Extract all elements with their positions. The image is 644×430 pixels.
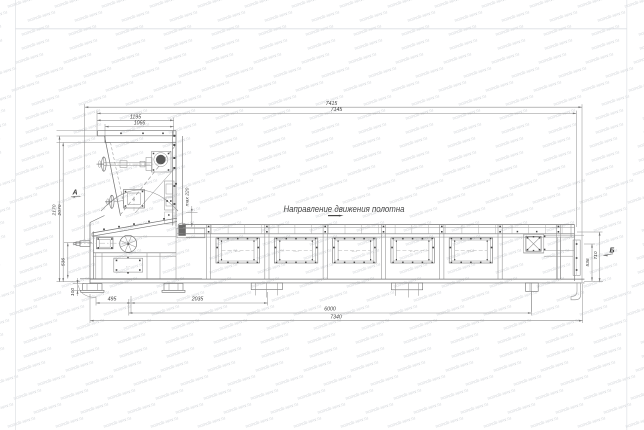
svg-text:nomob-wxv.ru: nomob-wxv.ru	[309, 345, 339, 359]
svg-text:nomob-wxv.ru: nomob-wxv.ru	[497, 331, 527, 345]
svg-text:nomob-wxv.ru: nomob-wxv.ru	[507, 401, 537, 415]
svg-text:nomob-wxv.ru: nomob-wxv.ru	[258, 23, 288, 37]
svg-text:nomob-wxv.ru: nomob-wxv.ru	[350, 359, 380, 373]
svg-text:nomob-wxv.ru: nomob-wxv.ru	[0, 65, 17, 79]
svg-text:nomob-wxv.ru: nomob-wxv.ru	[257, 135, 287, 149]
svg-text:nomob-wxv.ru: nomob-wxv.ru	[463, 65, 493, 79]
svg-text:nomob-wxv.ru: nomob-wxv.ru	[593, 331, 623, 345]
svg-text:nomob-wxv.ru: nomob-wxv.ru	[436, 303, 466, 317]
svg-text:nomob-wxv.ru: nomob-wxv.ru	[411, 93, 441, 107]
svg-text:nomob-wxv.ru: nomob-wxv.ru	[268, 93, 298, 107]
svg-text:-··-: -··-	[352, 248, 358, 253]
svg-text:nomob-wxv.ru: nomob-wxv.ru	[162, 261, 192, 275]
svg-text:nomob-wxv.ru: nomob-wxv.ru	[495, 261, 525, 275]
svg-text:nomob-wxv.ru: nomob-wxv.ru	[129, 177, 159, 191]
svg-text:nomob-wxv.ru: nomob-wxv.ru	[56, 303, 86, 317]
svg-text:nomob-wxv.ru: nomob-wxv.ru	[215, 121, 245, 135]
svg-text:nomob-wxv.ru: nomob-wxv.ru	[630, 387, 644, 401]
svg-text:nomob-wxv.ru: nomob-wxv.ru	[341, 303, 371, 317]
svg-text:nomob-wxv.ru: nomob-wxv.ru	[169, 9, 199, 23]
svg-text:nomob-wxv.ru: nomob-wxv.ru	[485, 191, 515, 205]
svg-text:nomob-wxv.ru: nomob-wxv.ru	[405, 107, 435, 121]
svg-text:nomob-wxv.ru: nomob-wxv.ru	[71, 345, 101, 359]
svg-text:nomob-wxv.ru: nomob-wxv.ru	[203, 275, 233, 289]
svg-text:nomob-wxv.ru: nomob-wxv.ru	[536, 275, 566, 289]
svg-text:nomob-wxv.ru: nomob-wxv.ru	[68, 23, 98, 37]
svg-text:536: 536	[61, 258, 67, 266]
svg-text:nomob-wxv.ru: nomob-wxv.ru	[33, 401, 63, 415]
svg-text:nomob-wxv.ru: nomob-wxv.ru	[103, 303, 133, 317]
svg-text:nomob-wxv.ru: nomob-wxv.ru	[354, 37, 384, 51]
svg-text:nomob-wxv.ru: nomob-wxv.ru	[0, 289, 15, 303]
svg-text:nomob-wxv.ru: nomob-wxv.ru	[543, 149, 573, 163]
svg-text:nomob-wxv.ru: nomob-wxv.ru	[529, 0, 559, 9]
svg-text:nomob-wxv.ru: nomob-wxv.ru	[357, 107, 387, 121]
svg-text:nomob-wxv.ru: nomob-wxv.ru	[223, 401, 253, 415]
svg-text:nomob-wxv.ru: nomob-wxv.ru	[23, 331, 53, 345]
svg-text:nomob-wxv.ru: nomob-wxv.ru	[533, 79, 563, 93]
svg-text:nomob-wxv.ru: nomob-wxv.ru	[111, 51, 141, 65]
svg-text:nomob-wxv.ru: nomob-wxv.ru	[497, 37, 527, 51]
svg-text:nomob-wxv.ru: nomob-wxv.ru	[37, 373, 67, 387]
svg-text:nomob-wxv.ru: nomob-wxv.ru	[0, 135, 1, 149]
svg-text:nomob-wxv.ru: nomob-wxv.ru	[83, 65, 113, 79]
svg-text:nomob-wxv.ru: nomob-wxv.ru	[434, 0, 464, 9]
svg-text:nomob-wxv.ru: nomob-wxv.ru	[219, 317, 249, 331]
svg-text:nomob-wxv.ru: nomob-wxv.ru	[640, 331, 644, 345]
svg-text:nomob-wxv.ru: nomob-wxv.ru	[632, 163, 644, 177]
svg-text:А: А	[71, 190, 77, 197]
svg-text:nomob-wxv.ru: nomob-wxv.ru	[131, 65, 161, 79]
svg-text:nomob-wxv.ru: nomob-wxv.ru	[585, 163, 615, 177]
svg-text:nomob-wxv.ru: nomob-wxv.ru	[119, 233, 149, 247]
svg-text:nomob-wxv.ru: nomob-wxv.ru	[305, 23, 335, 37]
svg-text:nomob-wxv.ru: nomob-wxv.ru	[113, 359, 143, 373]
svg-text:nomob-wxv.ru: nomob-wxv.ru	[547, 107, 577, 121]
svg-text:nomob-wxv.ru: nomob-wxv.ru	[397, 359, 427, 373]
svg-text:nomob-wxv.ru: nomob-wxv.ru	[493, 359, 523, 373]
svg-text:nomob-wxv.ru: nomob-wxv.ru	[499, 345, 529, 359]
svg-text:nomob-wxv.ru: nomob-wxv.ru	[603, 401, 633, 415]
svg-text:7145: 7145	[331, 107, 343, 113]
svg-text:nomob-wxv.ru: nomob-wxv.ru	[353, 23, 383, 37]
svg-text:nomob-wxv.ru: nomob-wxv.ru	[33, 289, 63, 303]
svg-text:nomob-wxv.ru: nomob-wxv.ru	[85, 373, 115, 387]
svg-text:nomob-wxv.ru: nomob-wxv.ru	[368, 65, 398, 79]
svg-text:nomob-wxv.ru: nomob-wxv.ru	[532, 191, 562, 205]
svg-text:nomob-wxv.ru: nomob-wxv.ru	[495, 135, 525, 149]
svg-text:nomob-wxv.ru: nomob-wxv.ru	[129, 289, 159, 303]
svg-text:nomob-wxv.ru: nomob-wxv.ru	[605, 65, 635, 79]
svg-text:2170: 2170	[51, 204, 57, 216]
svg-text:nomob-wxv.ru: nomob-wxv.ru	[152, 191, 182, 205]
svg-text:nomob-wxv.ru: nomob-wxv.ru	[448, 23, 478, 37]
svg-text:nomob-wxv.ru: nomob-wxv.ru	[0, 23, 2, 37]
svg-text:nomob-wxv.ru: nomob-wxv.ru	[21, 149, 51, 163]
svg-text:nomob-wxv.ru: nomob-wxv.ru	[180, 373, 210, 387]
svg-text:nomob-wxv.ru: nomob-wxv.ru	[209, 135, 239, 149]
svg-text:nomob-wxv.ru: nomob-wxv.ru	[246, 303, 276, 317]
svg-text:nomob-wxv.ru: nomob-wxv.ru	[359, 9, 389, 23]
svg-text:nomob-wxv.ru: nomob-wxv.ru	[581, 79, 611, 93]
svg-text:nomob-wxv.ru: nomob-wxv.ru	[358, 121, 388, 135]
svg-text:nomob-wxv.ru: nomob-wxv.ru	[293, 415, 323, 429]
svg-text:nomob-wxv.ru: nomob-wxv.ru	[68, 149, 98, 163]
svg-text:max 220: max 220	[185, 187, 191, 206]
svg-text:nomob-wxv.ru: nomob-wxv.ru	[66, 247, 96, 261]
svg-text:nomob-wxv.ru: nomob-wxv.ru	[297, 387, 327, 401]
svg-text:nomob-wxv.ru: nomob-wxv.ru	[23, 219, 53, 233]
svg-text:nomob-wxv.ru: nomob-wxv.ru	[417, 373, 447, 387]
svg-text:nomob-wxv.ru: nomob-wxv.ru	[178, 65, 208, 79]
svg-text:nomob-wxv.ru: nomob-wxv.ru	[262, 107, 292, 121]
svg-text:nomob-wxv.ru: nomob-wxv.ru	[583, 387, 613, 401]
svg-text:nomob-wxv.ru: nomob-wxv.ru	[275, 373, 305, 387]
svg-text:nomob-wxv.ru: nomob-wxv.ru	[17, 359, 47, 373]
svg-text:nomob-wxv.ru: nomob-wxv.ru	[150, 415, 180, 429]
svg-text:nomob-wxv.ru: nomob-wxv.ru	[544, 37, 574, 51]
svg-text:nomob-wxv.ru: nomob-wxv.ru	[441, 275, 471, 289]
svg-text:nomob-wxv.ru: nomob-wxv.ru	[161, 247, 191, 261]
svg-text:nomob-wxv.ru: nomob-wxv.ru	[121, 9, 151, 23]
svg-text:1066: 1066	[134, 121, 146, 127]
svg-text:nomob-wxv.ru: nomob-wxv.ru	[445, 359, 475, 373]
svg-text:nomob-wxv.ru: nomob-wxv.ru	[13, 387, 43, 401]
svg-text:nomob-wxv.ru: nomob-wxv.ru	[0, 401, 14, 415]
svg-text:nomob-wxv.ru: nomob-wxv.ru	[125, 93, 155, 107]
svg-text:495: 495	[108, 297, 117, 303]
svg-text:nomob-wxv.ru: nomob-wxv.ru	[387, 415, 417, 429]
svg-text:nomob-wxv.ru: nomob-wxv.ru	[352, 135, 382, 149]
svg-text:nomob-wxv.ru: nomob-wxv.ru	[543, 23, 573, 37]
svg-text:nomob-wxv.ru: nomob-wxv.ru	[54, 0, 84, 9]
svg-text:nomob-wxv.ru: nomob-wxv.ru	[261, 345, 291, 359]
svg-text:nomob-wxv.ru: nomob-wxv.ru	[636, 247, 644, 261]
svg-text:nomob-wxv.ru: nomob-wxv.ru	[207, 359, 237, 373]
svg-text:nomob-wxv.ru: nomob-wxv.ru	[55, 415, 85, 429]
svg-text:nomob-wxv.ru: nomob-wxv.ru	[217, 9, 247, 23]
svg-text:nomob-wxv.ru: nomob-wxv.ru	[13, 275, 43, 289]
svg-text:nomob-wxv.ru: nomob-wxv.ru	[453, 121, 483, 135]
svg-text:nomob-wxv.ru: nomob-wxv.ru	[363, 93, 393, 107]
svg-text:nomob-wxv.ru: nomob-wxv.ru	[395, 51, 425, 65]
svg-text:nomob-wxv.ru: nomob-wxv.ru	[540, 359, 570, 373]
svg-text:nomob-wxv.ru: nomob-wxv.ru	[551, 317, 581, 331]
svg-text:nomob-wxv.ru: nomob-wxv.ru	[499, 107, 529, 121]
svg-text:100: 100	[70, 288, 76, 296]
svg-text:nomob-wxv.ru: nomob-wxv.ru	[401, 23, 431, 37]
svg-text:nomob-wxv.ru: nomob-wxv.ru	[452, 107, 482, 121]
svg-text:nomob-wxv.ru: nomob-wxv.ru	[451, 345, 481, 359]
svg-text:-··-: -··-	[235, 248, 241, 253]
svg-text:nomob-wxv.ru: nomob-wxv.ru	[173, 93, 203, 107]
svg-text:nomob-wxv.ru: nomob-wxv.ru	[0, 121, 7, 135]
svg-text:nomob-wxv.ru: nomob-wxv.ru	[23, 345, 53, 359]
svg-text:nomob-wxv.ru: nomob-wxv.ru	[177, 177, 207, 191]
svg-text:nomob-wxv.ru: nomob-wxv.ru	[25, 233, 55, 247]
svg-text:nomob-wxv.ru: nomob-wxv.ru	[163, 149, 193, 163]
svg-text:nomob-wxv.ru: nomob-wxv.ru	[403, 345, 433, 359]
svg-text:nomob-wxv.ru: nomob-wxv.ru	[505, 205, 535, 219]
svg-text:nomob-wxv.ru: nomob-wxv.ru	[225, 177, 255, 191]
svg-text:nomob-wxv.ru: nomob-wxv.ru	[413, 401, 443, 415]
svg-text:nomob-wxv.ru: nomob-wxv.ru	[605, 177, 635, 191]
svg-text:nomob-wxv.ru: nomob-wxv.ru	[9, 303, 39, 317]
svg-text:nomob-wxv.ru: nomob-wxv.ru	[223, 289, 253, 303]
svg-text:nomob-wxv.ru: nomob-wxv.ru	[553, 93, 583, 107]
svg-text:nomob-wxv.ru: nomob-wxv.ru	[80, 401, 110, 415]
svg-text:nomob-wxv.ru: nomob-wxv.ru	[489, 275, 519, 289]
svg-text:nomob-wxv.ru: nomob-wxv.ru	[339, 0, 369, 9]
svg-text:nomob-wxv.ru: nomob-wxv.ru	[465, 373, 495, 387]
svg-text:nomob-wxv.ru: nomob-wxv.ru	[591, 149, 621, 163]
svg-text:nomob-wxv.ru: nomob-wxv.ru	[0, 233, 6, 247]
svg-text:nomob-wxv.ru: nomob-wxv.ru	[403, 219, 433, 233]
svg-text:nomob-wxv.ru: nomob-wxv.ru	[558, 65, 588, 79]
svg-text:nomob-wxv.ru: nomob-wxv.ru	[245, 415, 275, 429]
svg-text:nomob-wxv.ru: nomob-wxv.ru	[449, 37, 479, 51]
svg-text:nomob-wxv.ru: nomob-wxv.ru	[415, 65, 445, 79]
svg-text:nomob-wxv.ru: nomob-wxv.ru	[591, 37, 621, 51]
svg-text:nomob-wxv.ru: nomob-wxv.ru	[538, 51, 568, 65]
svg-text:nomob-wxv.ru: nomob-wxv.ru	[133, 373, 163, 387]
svg-text:nomob-wxv.ru: nomob-wxv.ru	[60, 387, 90, 401]
svg-text:nomob-wxv.ru: nomob-wxv.ru	[21, 23, 51, 37]
svg-text:nomob-wxv.ru: nomob-wxv.ru	[203, 387, 233, 401]
svg-text:nomob-wxv.ru: nomob-wxv.ru	[25, 107, 55, 121]
svg-text:nomob-wxv.ru: nomob-wxv.ru	[63, 51, 93, 65]
svg-text:nomob-wxv.ru: nomob-wxv.ru	[348, 51, 378, 65]
svg-text:nomob-wxv.ru: nomob-wxv.ru	[454, 9, 484, 23]
svg-text:nomob-wxv.ru: nomob-wxv.ru	[448, 149, 478, 163]
svg-text:nomob-wxv.ru: nomob-wxv.ru	[158, 51, 188, 65]
svg-text:nomob-wxv.ru: nomob-wxv.ru	[461, 289, 491, 303]
svg-text:nomob-wxv.ru: nomob-wxv.ru	[201, 79, 231, 93]
svg-text:nomob-wxv.ru: nomob-wxv.ru	[505, 93, 535, 107]
svg-text:nomob-wxv.ru: nomob-wxv.ru	[481, 0, 511, 9]
svg-text:nomob-wxv.ru: nomob-wxv.ru	[405, 121, 435, 135]
svg-text:nomob-wxv.ru: nomob-wxv.ru	[631, 275, 644, 289]
svg-text:nomob-wxv.ru: nomob-wxv.ru	[413, 289, 443, 303]
svg-text:nomob-wxv.ru: nomob-wxv.ru	[595, 107, 625, 121]
svg-text:nomob-wxv.ru: nomob-wxv.ru	[293, 303, 323, 317]
svg-text:nomob-wxv.ru: nomob-wxv.ru	[0, 345, 5, 359]
svg-text:nomob-wxv.ru: nomob-wxv.ru	[272, 177, 302, 191]
svg-text:nomob-wxv.ru: nomob-wxv.ru	[370, 373, 400, 387]
svg-text:nomob-wxv.ru: nomob-wxv.ru	[305, 135, 335, 149]
svg-text:nomob-wxv.ru: nomob-wxv.ru	[78, 93, 108, 107]
svg-text:nomob-wxv.ru: nomob-wxv.ru	[35, 65, 65, 79]
svg-text:nomob-wxv.ru: nomob-wxv.ru	[447, 135, 477, 149]
svg-text:nomob-wxv.ru: nomob-wxv.ru	[501, 121, 531, 135]
svg-text:nomob-wxv.ru: nomob-wxv.ru	[0, 37, 3, 51]
svg-text:nomob-wxv.ru: nomob-wxv.ru	[555, 401, 585, 415]
svg-text:nomob-wxv.ru: nomob-wxv.ru	[311, 9, 341, 23]
svg-text:7340: 7340	[330, 314, 342, 320]
svg-text:nomob-wxv.ru: nomob-wxv.ru	[457, 205, 487, 219]
svg-text:nomob-wxv.ru: nomob-wxv.ru	[387, 0, 417, 9]
svg-text:nomob-wxv.ru: nomob-wxv.ru	[199, 191, 229, 205]
svg-text:nomob-wxv.ru: nomob-wxv.ru	[633, 51, 644, 65]
svg-text:nomob-wxv.ru: nomob-wxv.ru	[213, 219, 243, 233]
svg-text:nomob-wxv.ru: nomob-wxv.ru	[256, 247, 286, 261]
svg-text:nomob-wxv.ru: nomob-wxv.ru	[21, 37, 51, 51]
svg-text:nomob-wxv.ru: nomob-wxv.ru	[0, 317, 10, 331]
svg-text:nomob-wxv.ru: nomob-wxv.ru	[119, 345, 149, 359]
svg-text:nomob-wxv.ru: nomob-wxv.ru	[197, 415, 227, 429]
svg-text:nomob-wxv.ru: nomob-wxv.ru	[319, 289, 349, 303]
svg-text:nomob-wxv.ru: nomob-wxv.ru	[595, 121, 625, 135]
svg-text:nomob-wxv.ru: nomob-wxv.ru	[637, 261, 644, 275]
svg-text:nomob-wxv.ru: nomob-wxv.ru	[548, 121, 578, 135]
svg-text:nomob-wxv.ru: nomob-wxv.ru	[259, 37, 289, 51]
svg-text:nomob-wxv.ru: nomob-wxv.ru	[270, 401, 300, 415]
svg-text:nomob-wxv.ru: nomob-wxv.ru	[127, 401, 157, 415]
svg-text:nomob-wxv.ru: nomob-wxv.ru	[227, 373, 257, 387]
svg-text:nomob-wxv.ru: nomob-wxv.ru	[248, 79, 278, 93]
svg-text:nomob-wxv.ru: nomob-wxv.ru	[593, 345, 623, 359]
svg-text:nomob-wxv.ru: nomob-wxv.ru	[638, 149, 644, 163]
svg-text:nomob-wxv.ru: nomob-wxv.ru	[58, 79, 88, 93]
svg-text:Направление движения полотна: Направление движения полотна	[284, 204, 405, 214]
svg-text:nomob-wxv.ru: nomob-wxv.ru	[115, 135, 145, 149]
svg-text:nomob-wxv.ru: nomob-wxv.ru	[625, 415, 644, 429]
svg-text:nomob-wxv.ru: nomob-wxv.ru	[15, 51, 45, 65]
svg-text:2035: 2035	[191, 297, 204, 303]
svg-text:nomob-wxv.ru: nomob-wxv.ru	[266, 317, 296, 331]
svg-text:nomob-wxv.ru: nomob-wxv.ru	[491, 51, 521, 65]
svg-text:nomob-wxv.ru: nomob-wxv.ru	[409, 205, 439, 219]
svg-text:nomob-wxv.ru: nomob-wxv.ru	[460, 401, 490, 415]
svg-text:nomob-wxv.ru: nomob-wxv.ru	[252, 163, 282, 177]
svg-text:nomob-wxv.ru: nomob-wxv.ru	[113, 247, 143, 261]
svg-text:nomob-wxv.ru: nomob-wxv.ru	[0, 9, 8, 23]
svg-text:nomob-wxv.ru: nomob-wxv.ru	[197, 0, 227, 9]
svg-text:nomob-wxv.ru: nomob-wxv.ru	[19, 247, 49, 261]
svg-text:nomob-wxv.ru: nomob-wxv.ru	[628, 79, 644, 93]
svg-text:nomob-wxv.ru: nomob-wxv.ru	[153, 79, 183, 93]
svg-text:nomob-wxv.ru: nomob-wxv.ru	[61, 275, 91, 289]
svg-text:nomob-wxv.ru: nomob-wxv.ru	[537, 163, 567, 177]
svg-text:nomob-wxv.ru: nomob-wxv.ru	[115, 149, 145, 163]
svg-text:nomob-wxv.ru: nomob-wxv.ru	[74, 9, 104, 23]
svg-text:nomob-wxv.ru: nomob-wxv.ru	[483, 303, 513, 317]
svg-text:nomob-wxv.ru: nomob-wxv.ru	[501, 9, 531, 23]
svg-text:nomob-wxv.ru: nomob-wxv.ru	[82, 177, 112, 191]
svg-text:nomob-wxv.ru: nomob-wxv.ru	[167, 107, 197, 121]
svg-text:nomob-wxv.ru: nomob-wxv.ru	[0, 261, 1, 275]
svg-text:nomob-wxv.ru: nomob-wxv.ru	[299, 163, 329, 177]
svg-text:nomob-wxv.ru: nomob-wxv.ru	[307, 37, 337, 51]
svg-text:nomob-wxv.ru: nomob-wxv.ru	[627, 191, 644, 205]
svg-text:nomob-wxv.ru: nomob-wxv.ru	[560, 373, 590, 387]
svg-text:nomob-wxv.ru: nomob-wxv.ru	[599, 205, 629, 219]
svg-text:nomob-wxv.ru: nomob-wxv.ru	[456, 317, 486, 331]
svg-text:nomob-wxv.ru: nomob-wxv.ru	[489, 163, 519, 177]
svg-text:nomob-wxv.ru: nomob-wxv.ru	[209, 247, 239, 261]
svg-text:nomob-wxv.ru: nomob-wxv.ru	[389, 303, 419, 317]
svg-text:nomob-wxv.ru: nomob-wxv.ru	[440, 387, 470, 401]
svg-text:nomob-wxv.ru: nomob-wxv.ru	[76, 317, 106, 331]
svg-text:nomob-wxv.ru: nomob-wxv.ru	[301, 51, 331, 65]
svg-text:nomob-wxv.ru: nomob-wxv.ru	[311, 121, 341, 135]
svg-text:nomob-wxv.ru: nomob-wxv.ru	[391, 79, 421, 93]
svg-text:nomob-wxv.ru: nomob-wxv.ru	[407, 9, 437, 23]
svg-text:nomob-wxv.ru: nomob-wxv.ru	[160, 359, 190, 373]
svg-text:nomob-wxv.ru: nomob-wxv.ru	[291, 0, 321, 9]
svg-text:nomob-wxv.ru: nomob-wxv.ru	[509, 177, 539, 191]
svg-text:nomob-wxv.ru: nomob-wxv.ru	[319, 177, 349, 191]
svg-text:nomob-wxv.ru: nomob-wxv.ru	[303, 359, 333, 373]
svg-text:nomob-wxv.ru: nomob-wxv.ru	[353, 149, 383, 163]
svg-text:nomob-wxv.ru: nomob-wxv.ru	[165, 331, 195, 345]
svg-text:nomob-wxv.ru: nomob-wxv.ru	[166, 345, 196, 359]
svg-text:nomob-wxv.ru: nomob-wxv.ru	[635, 359, 644, 373]
svg-text:nomob-wxv.ru: nomob-wxv.ru	[593, 219, 623, 233]
svg-text:nomob-wxv.ru: nomob-wxv.ru	[485, 79, 515, 93]
svg-text:nomob-wxv.ru: nomob-wxv.ru	[579, 303, 609, 317]
svg-text:nomob-wxv.ru: nomob-wxv.ru	[356, 345, 386, 359]
svg-text:nomob-wxv.ru: nomob-wxv.ru	[361, 317, 391, 331]
svg-text:nomob-wxv.ru: nomob-wxv.ru	[546, 345, 576, 359]
svg-text:nomob-wxv.ru: nomob-wxv.ru	[499, 233, 529, 247]
svg-text:nomob-wxv.ru: nomob-wxv.ru	[19, 135, 49, 149]
svg-text:nomob-wxv.ru: nomob-wxv.ru	[0, 219, 5, 233]
svg-text:nomob-wxv.ru: nomob-wxv.ru	[513, 373, 543, 387]
svg-text:nomob-wxv.ru: nomob-wxv.ru	[535, 387, 565, 401]
svg-text:nomob-wxv.ru: nomob-wxv.ru	[260, 331, 290, 345]
svg-text:nomob-wxv.ru: nomob-wxv.ru	[603, 289, 633, 303]
svg-text:nomob-wxv.ru: nomob-wxv.ru	[213, 331, 243, 345]
svg-text:nomob-wxv.ru: nomob-wxv.ru	[495, 23, 525, 37]
svg-text:nomob-wxv.ru: nomob-wxv.ru	[321, 65, 351, 79]
svg-text:nomob-wxv.ru: nomob-wxv.ru	[356, 219, 386, 233]
svg-text:nomob-wxv.ru: nomob-wxv.ru	[323, 373, 353, 387]
svg-text:nomob-wxv.ru: nomob-wxv.ru	[0, 149, 2, 163]
svg-text:nomob-wxv.ru: nomob-wxv.ru	[247, 191, 277, 205]
svg-text:nomob-wxv.ru: nomob-wxv.ru	[367, 177, 397, 191]
svg-text:nomob-wxv.ru: nomob-wxv.ru	[637, 135, 644, 149]
svg-text:nomob-wxv.ru: nomob-wxv.ru	[211, 149, 241, 163]
svg-text:nomob-wxv.ru: nomob-wxv.ru	[0, 331, 4, 345]
svg-text:nomob-wxv.ru: nomob-wxv.ru	[62, 163, 92, 177]
svg-text:nomob-wxv.ru: nomob-wxv.ru	[305, 149, 335, 163]
svg-text:nomob-wxv.ru: nomob-wxv.ru	[587, 359, 617, 373]
svg-text:nomob-wxv.ru: nomob-wxv.ru	[175, 401, 205, 415]
svg-text:nomob-wxv.ru: nomob-wxv.ru	[626, 303, 644, 317]
svg-text:nomob-wxv.ru: nomob-wxv.ru	[35, 177, 65, 191]
svg-text:nomob-wxv.ru: nomob-wxv.ru	[577, 415, 607, 429]
svg-text:nomob-wxv.ru: nomob-wxv.ru	[346, 275, 376, 289]
svg-text:nomob-wxv.ru: nomob-wxv.ru	[215, 107, 245, 121]
svg-text:nomob-wxv.ru: nomob-wxv.ru	[437, 191, 467, 205]
svg-text:nomob-wxv.ru: nomob-wxv.ru	[395, 163, 425, 177]
svg-text:-··-: -··-	[468, 248, 474, 253]
svg-text:nomob-wxv.ru: nomob-wxv.ru	[438, 79, 468, 93]
svg-text:nomob-wxv.ru: nomob-wxv.ru	[577, 0, 607, 9]
svg-text:nomob-wxv.ru: nomob-wxv.ru	[263, 121, 293, 135]
svg-text:nomob-wxv.ru: nomob-wxv.ru	[450, 331, 480, 345]
svg-text:nomob-wxv.ru: nomob-wxv.ru	[125, 205, 155, 219]
svg-text:nomob-wxv.ru: nomob-wxv.ru	[115, 23, 145, 37]
svg-text:nomob-wxv.ru: nomob-wxv.ru	[442, 163, 472, 177]
svg-text:nomob-wxv.ru: nomob-wxv.ru	[205, 163, 235, 177]
svg-text:nomob-wxv.ru: nomob-wxv.ru	[253, 51, 283, 65]
svg-text:nomob-wxv.ru: nomob-wxv.ru	[451, 219, 481, 233]
svg-text:nomob-wxv.ru: nomob-wxv.ru	[71, 219, 101, 233]
svg-text:nomob-wxv.ru: nomob-wxv.ru	[219, 205, 249, 219]
svg-text:nomob-wxv.ru: nomob-wxv.ru	[73, 121, 103, 135]
